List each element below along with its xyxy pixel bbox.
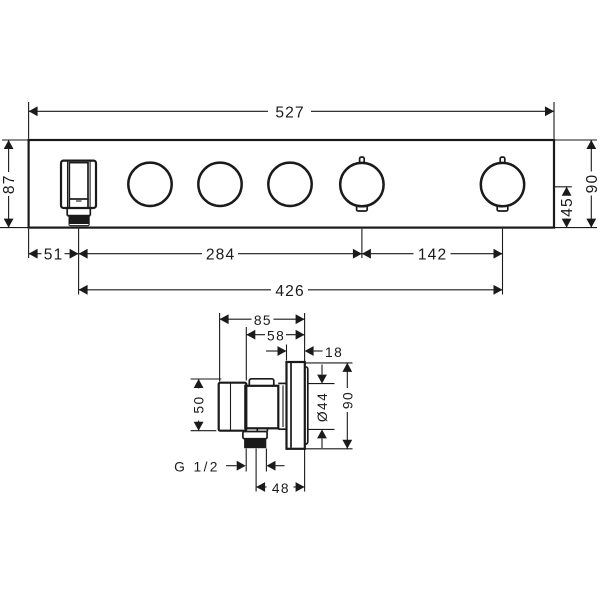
svg-text:87: 87 <box>1 174 18 194</box>
svg-text:50: 50 <box>192 395 207 413</box>
svg-text:58: 58 <box>267 329 285 344</box>
svg-text:48: 48 <box>272 481 290 496</box>
svg-text:85: 85 <box>254 313 272 328</box>
svg-text:90: 90 <box>340 391 355 409</box>
svg-text:527: 527 <box>275 104 304 121</box>
svg-text:18: 18 <box>325 345 343 360</box>
svg-text:142: 142 <box>418 247 447 264</box>
svg-text:426: 426 <box>275 283 304 300</box>
svg-text:51: 51 <box>44 247 64 264</box>
svg-text:G 1/2: G 1/2 <box>174 460 220 475</box>
svg-text:284: 284 <box>206 247 235 264</box>
svg-text:Ø44: Ø44 <box>315 392 330 422</box>
svg-text:90: 90 <box>584 174 600 194</box>
svg-text:45: 45 <box>559 197 576 217</box>
